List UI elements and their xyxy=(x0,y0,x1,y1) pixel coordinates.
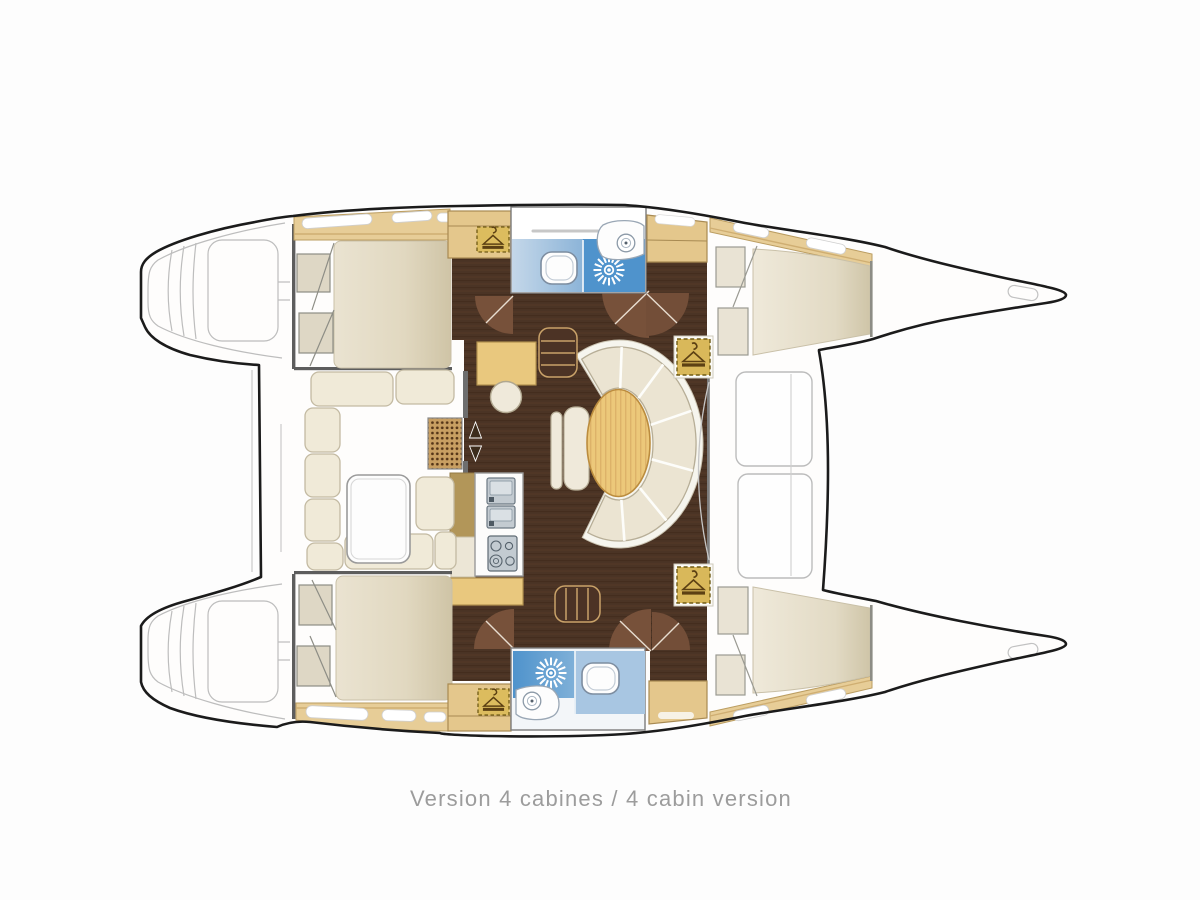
svg-text:Version 4 cabines / 4 cabin ve: Version 4 cabines / 4 cabin version xyxy=(410,786,792,811)
